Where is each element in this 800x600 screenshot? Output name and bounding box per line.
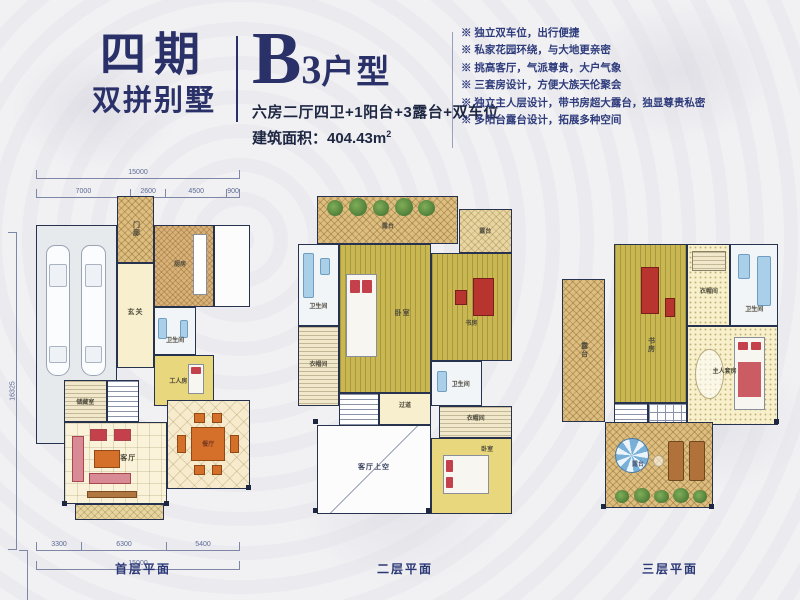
room-label: 卫生间 — [731, 306, 777, 314]
room-storage: 储藏室 — [64, 380, 107, 421]
lounge-chair-icon — [689, 441, 705, 481]
bathtub-icon — [303, 253, 315, 298]
bed-icon — [346, 274, 377, 357]
plant-icon — [615, 490, 630, 503]
room-dining: 餐厅 — [167, 400, 250, 489]
room-label: 客厅 — [113, 455, 143, 463]
unit-type: 户型 — [321, 55, 391, 91]
entry-steps — [75, 504, 165, 520]
room-label: 露台 — [318, 223, 457, 231]
caption-floor1: 首层平面 — [36, 560, 250, 577]
car-icon — [46, 245, 71, 375]
bathtub-icon — [757, 256, 771, 306]
room-label: 露台 — [460, 228, 512, 236]
dim-segment: 15000 — [36, 170, 240, 179]
bed-icon — [443, 455, 489, 494]
room-label: 门廊 — [132, 221, 140, 237]
caption-floor2: 二层平面 — [298, 560, 512, 577]
room-bath: 卫生间 — [298, 244, 339, 327]
floorplan-poster: 四期 双拼别墅 B3户型 六房二厅四卫+1阳台+3露台+双车位 建筑面积：404… — [0, 0, 800, 600]
feature-item: ※ 多阳台露台设计，拓展多种空间 — [461, 112, 793, 129]
room-porch: 门廊 — [117, 196, 153, 263]
plant-icon — [349, 198, 367, 216]
room-label: 主人套房 — [672, 368, 777, 376]
room-master: 主人套房 — [687, 326, 778, 425]
lounge-chair-icon — [668, 441, 684, 481]
sofa-icon — [114, 429, 131, 441]
room-label: 衣帽间 — [440, 415, 511, 423]
dim-left-floor1: 7075215054001500 — [19, 550, 28, 600]
plant-icon — [418, 200, 435, 216]
room-label: 卧室 — [463, 446, 511, 454]
sofa-icon — [72, 436, 84, 483]
room-bath: 卫生间 — [730, 244, 778, 327]
unit-area: 建筑面积：404.43m2 — [252, 127, 499, 148]
room-label: 过道 — [380, 402, 429, 410]
room-label: 储藏室 — [65, 399, 106, 407]
features-divider — [452, 32, 453, 148]
room-living-void: 客厅上空 — [317, 425, 430, 514]
room-label: 露台 — [627, 461, 648, 469]
second-floor-plan: 露台 露台 卫生间 衣帽间 卧室 书房 卫生间 — [298, 196, 512, 514]
phase-title: 四期 — [84, 28, 224, 82]
room-closet-2: 衣帽间 — [439, 406, 512, 438]
dim-bottom-floor1: 330063005400 — [36, 542, 240, 551]
room-foyer: 玄关 — [117, 263, 153, 368]
feature-item: ※ 挑高客厅，气派尊贵，大户气象 — [461, 60, 793, 77]
room-closet: 衣帽间 — [687, 244, 730, 327]
dim-left-total-floor1: 16325 — [8, 232, 17, 550]
room-label: 卧室 — [376, 310, 430, 318]
room-label: 客厅上空 — [318, 464, 429, 472]
room-terrace-big: 露台 — [605, 422, 713, 508]
toilet-icon — [738, 254, 750, 278]
room-terrace: 露台 — [562, 279, 605, 422]
plant-icon — [693, 490, 707, 503]
room-closet: 衣帽间 — [298, 326, 339, 406]
dim-segment: 7075 — [19, 550, 28, 600]
first-floor-plan: 车库 门廊 玄关 厨房 卫生间 工人房 储藏室 — [36, 196, 250, 514]
room-label: 书房 — [647, 337, 655, 353]
plant-icon — [327, 200, 344, 216]
car-icon — [81, 245, 106, 375]
room-label: 衣帽间 — [299, 361, 338, 369]
room-corridor: 过道 — [379, 393, 430, 425]
caption-floor3: 三层平面 — [562, 560, 778, 577]
dim-segment: 16325 — [8, 232, 17, 550]
room-kitchen: 厨房 — [154, 225, 214, 308]
shelf-icon — [692, 251, 727, 270]
side-table-icon — [653, 455, 665, 468]
feature-item: ※ 私家花园环绕，与大地更亲密 — [461, 42, 793, 59]
feature-list: ※ 独立双车位，出行便捷 ※ 私家花园环绕，与大地更亲密 ※ 挑高客厅，气派尊贵… — [461, 25, 793, 129]
tv-cabinet-icon — [87, 491, 137, 498]
room-label: 书房 — [432, 320, 511, 328]
room-label: 卫生间 — [155, 337, 196, 345]
unit-letter: B — [252, 18, 301, 100]
room-bath: 卫生间 — [154, 307, 197, 355]
room-label: 卫生间 — [441, 381, 481, 389]
dim-top-total-floor1: 15000 — [36, 170, 240, 179]
room-bedroom: 卧室 — [339, 244, 431, 393]
plant-icon — [673, 488, 689, 503]
room-utility — [214, 225, 250, 308]
feature-item: ※ 独立双车位，出行便捷 — [461, 25, 793, 42]
room-terrace-2: 露台 — [459, 209, 513, 254]
dim-segment: 6300 — [81, 542, 166, 551]
room-label: 工人房 — [144, 378, 212, 386]
room-study: 书房 — [431, 253, 512, 361]
room-label: 厨房 — [148, 261, 213, 269]
room-bedroom-2: 卧室 — [431, 438, 512, 514]
desk-icon — [641, 267, 660, 314]
stairs-icon — [107, 380, 139, 421]
phase-block: 四期 双拼别墅 — [84, 28, 224, 120]
dim-segment: 5400 — [166, 542, 240, 551]
plant-icon — [395, 198, 413, 216]
third-floor-plan: 露台 书房 衣帽间 卫生间 主人套房 — [562, 196, 778, 514]
feature-item: ※ 独立主人层设计，带书房超大露台，独显尊贵私密 — [461, 95, 793, 112]
feature-item: ※ 三套房设计，方便大族天伦聚会 — [461, 77, 793, 94]
dim-segment: 3300 — [36, 542, 81, 551]
sink-icon — [180, 320, 188, 337]
room-living: 客厅 — [64, 422, 167, 505]
room-label: 衣帽间 — [688, 288, 729, 296]
sofa-icon — [89, 473, 131, 484]
plant-icon — [373, 200, 390, 216]
phase-subtitle: 双拼别墅 — [84, 82, 224, 120]
plant-icon — [634, 488, 650, 503]
room-label: 卫生间 — [299, 303, 338, 311]
sofa-icon — [90, 429, 107, 441]
room-study: 书房 — [614, 244, 687, 403]
room-maid: 工人房 — [154, 355, 214, 406]
desk-icon — [473, 278, 494, 316]
room-bath-2: 卫生间 — [431, 361, 482, 406]
chair-icon — [455, 290, 466, 305]
room-label: 餐厅 — [168, 441, 249, 449]
room-label: 玄关 — [118, 309, 152, 317]
plant-icon — [654, 490, 669, 503]
header-divider — [236, 36, 238, 122]
unit-digit: 3 — [301, 47, 321, 92]
chair-icon — [665, 298, 675, 317]
sink-icon — [320, 258, 330, 276]
room-label: 露台 — [580, 342, 588, 358]
room-terrace: 露台 — [317, 196, 458, 244]
